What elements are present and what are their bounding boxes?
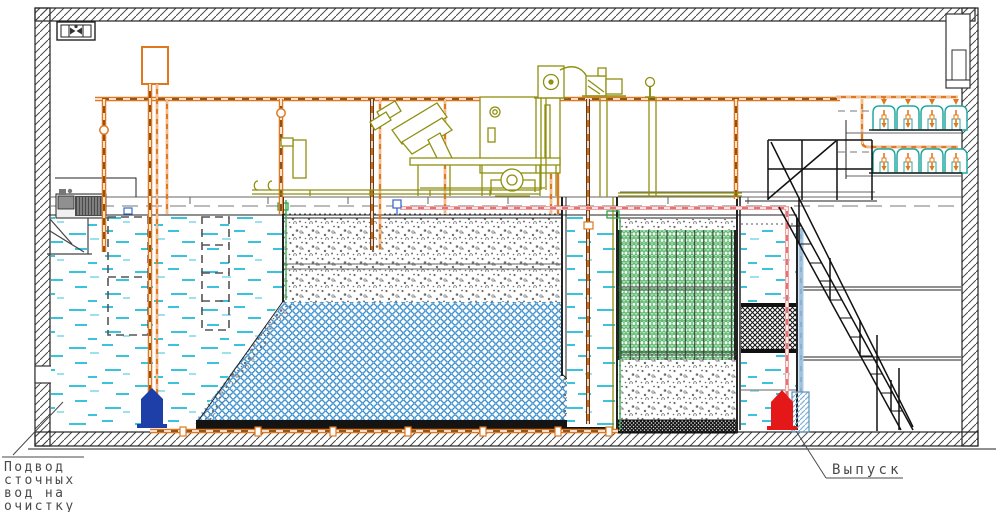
inlet-label-line4: очистку — [4, 499, 76, 512]
drainage-grid — [618, 420, 737, 433]
diffuser-bells — [838, 106, 967, 179]
support-gravel-layer — [618, 358, 737, 420]
ventilation-fan-icon — [57, 22, 95, 40]
doorway-frame — [946, 14, 970, 88]
biofilter-block — [607, 197, 737, 433]
screen-machine — [252, 97, 560, 196]
transfer-channel — [566, 197, 615, 427]
floating-media-layer — [284, 218, 562, 302]
small-fittings — [124, 200, 401, 215]
blower-unit — [534, 66, 742, 197]
treatment-plant-section-drawing: Подвод сточных вод на очистку Выпуск — [0, 0, 1000, 512]
outlet-label: Выпуск — [832, 462, 902, 478]
drawing-svg: Подвод сточных вод на очистку Выпуск — [0, 0, 1000, 512]
platform-railing — [768, 140, 872, 200]
inlet-wall-sleeve — [35, 366, 52, 383]
air-receiver-tank — [142, 47, 168, 84]
roof-wall — [35, 8, 975, 21]
floor-slab — [35, 432, 978, 446]
